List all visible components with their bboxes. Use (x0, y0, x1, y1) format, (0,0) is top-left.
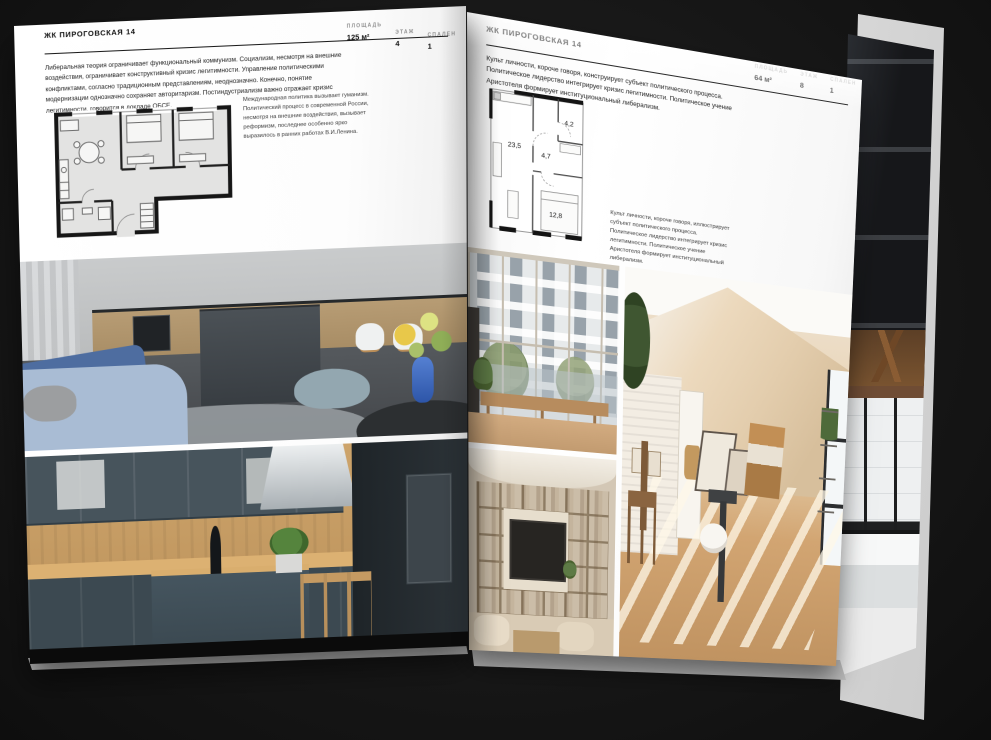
stats-row: ПЛОЩАДЬ 64 м² ЭТАЖ 8 СПАЛЕН 1 (754, 64, 856, 99)
steel-hood (259, 443, 357, 510)
blue-vase (411, 357, 433, 403)
floor-plan-left (50, 98, 237, 244)
cushion (473, 615, 509, 646)
bucket (276, 554, 303, 574)
stat-bedrooms: СПАЛЕН 1 (830, 77, 857, 99)
stat-area: ПЛОЩАДЬ 125 м² (347, 22, 383, 42)
right-page: ЖК ПИРОГОВСКАЯ 14 ПЛОЩАДЬ 64 м² ЭТАЖ 8 С… (467, 12, 862, 666)
safari-chair (744, 423, 785, 500)
wood-chair (627, 506, 656, 565)
photo-kitchen-living-gray (20, 243, 467, 451)
magazine-mockup: ЖК ПИРОГОВСКАЯ 14 ПЛОЩАДЬ 64 м² ЭТАЖ 8 С… (0, 0, 991, 740)
plant-shape (563, 560, 576, 579)
stat-area: ПЛОЩАДЬ 64 м² (754, 64, 788, 88)
photo-kitchen-teal-wood (25, 438, 468, 664)
room-area-bath: 4,2 (564, 119, 573, 129)
floor-plan-right-drawing: 23,5 4,7 4,2 12,8 (480, 80, 598, 243)
fridge (405, 473, 452, 585)
stat-floor: ЭТАЖ 4 (395, 29, 414, 48)
wall-frame (647, 451, 661, 477)
white-chair (356, 323, 385, 351)
tv-screen (509, 519, 566, 582)
coffee-table (513, 630, 559, 654)
room-area-hall: 4,7 (541, 151, 550, 160)
photo-window-city-view (468, 247, 620, 455)
floor-plan-left-drawing (50, 98, 237, 244)
photo-shelving-tv-wall (468, 448, 616, 657)
plan-caption: Международная политика вызывает гуманизм… (243, 90, 371, 141)
loft-chair-legs (850, 330, 930, 382)
floor-plan-right: 23,5 4,7 4,2 12,8 (480, 80, 598, 243)
left-page: ЖК ПИРОГОВСКАЯ 14 ПЛОЩАДЬ 125 м² ЭТАЖ 4 … (14, 6, 468, 664)
glass-cabinet (56, 460, 106, 510)
stat-bedrooms: СПАЛЕН 1 (428, 31, 457, 51)
photo-sunny-attic-room (619, 267, 853, 666)
cushion (557, 621, 594, 652)
room-area-bedroom: 12,8 (549, 210, 562, 220)
room-area-living: 23,5 (508, 140, 521, 150)
wine-bottle (209, 526, 221, 574)
page-title: ЖК ПИРОГОВСКАЯ 14 (44, 27, 136, 40)
stats-row: ПЛОЩАДЬ 125 м² ЭТАЖ 4 СПАЛЕН 1 (347, 19, 456, 55)
stat-floor: ЭТАЖ 8 (800, 71, 819, 92)
